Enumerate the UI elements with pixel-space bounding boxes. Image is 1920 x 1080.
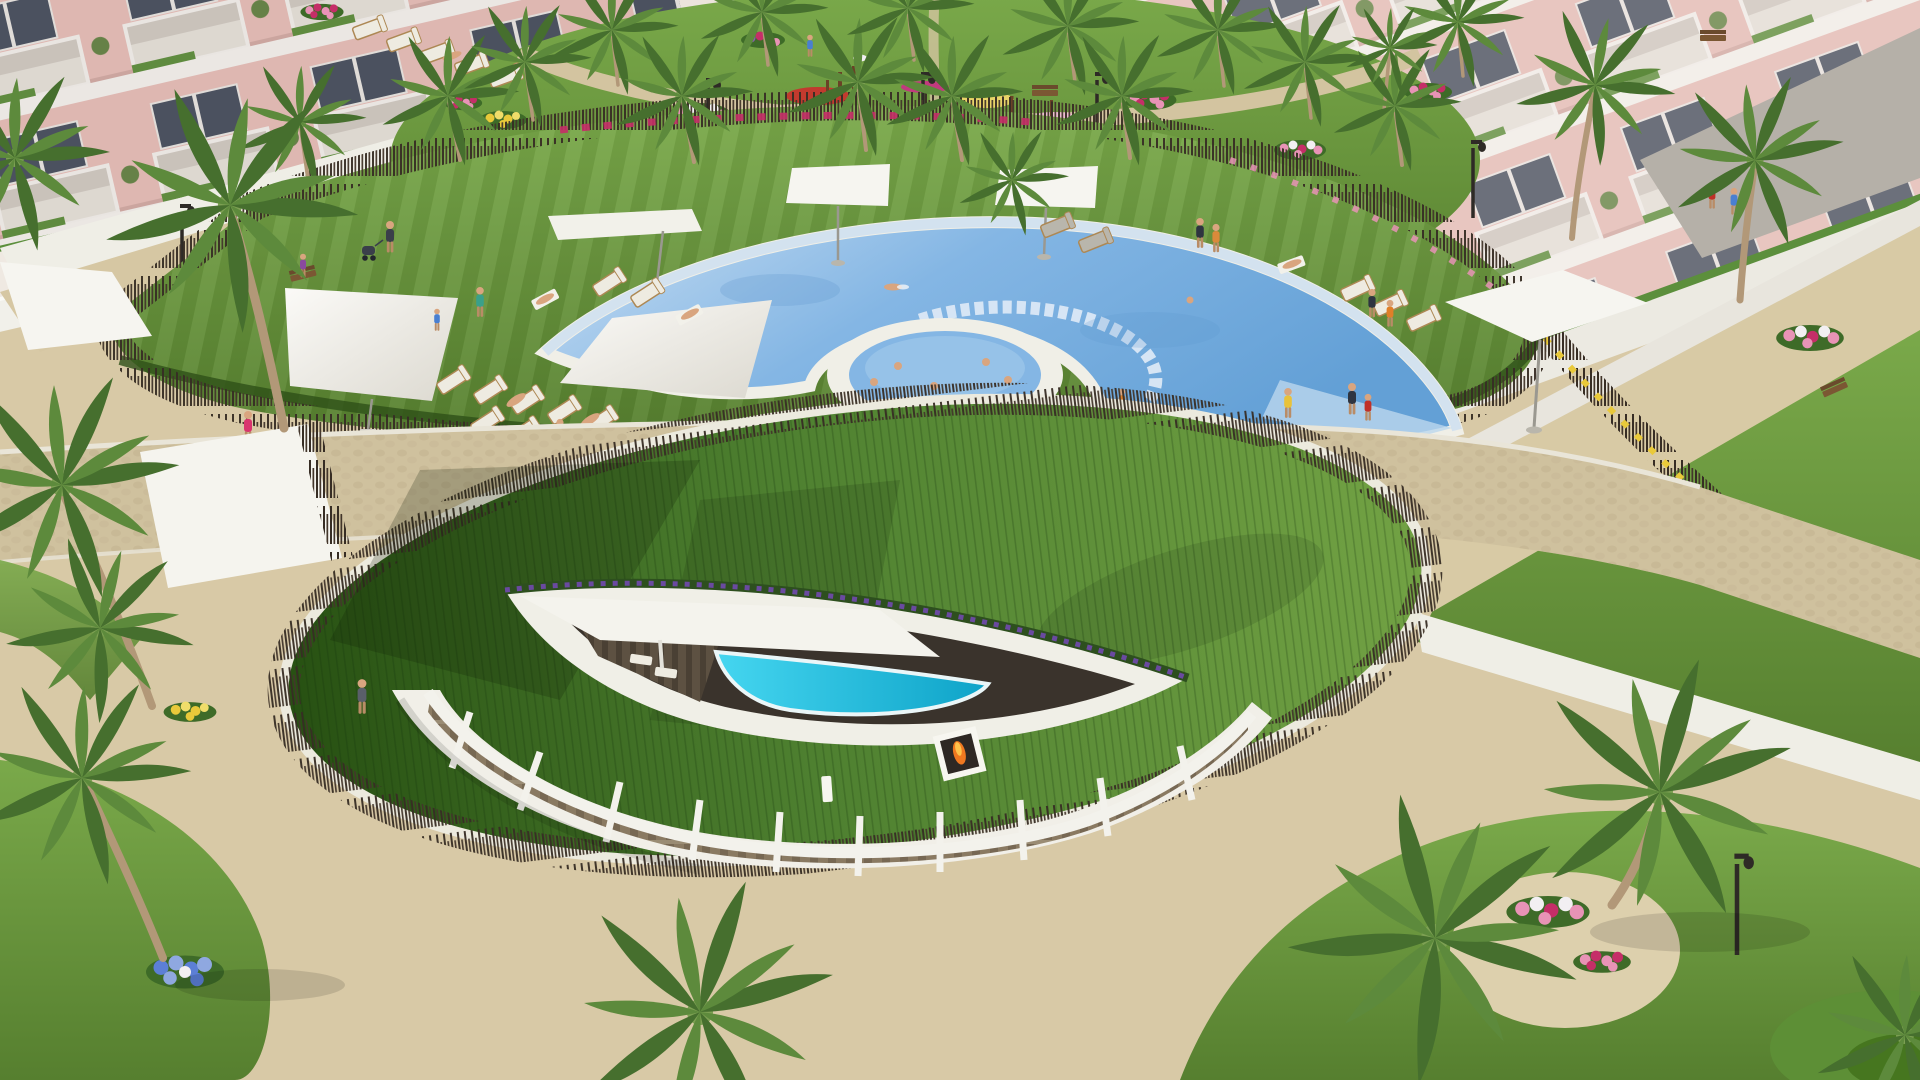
flower-bed (1776, 325, 1844, 351)
door-handle (821, 776, 833, 803)
umbrella (786, 164, 890, 206)
scene-canvas (0, 0, 1920, 1080)
park-bench (1700, 30, 1726, 41)
rendered-scene (0, 0, 1920, 1080)
flower-bed-bougainvillea (1506, 896, 1589, 928)
park-bench (1032, 85, 1058, 96)
umbrella (285, 288, 458, 401)
